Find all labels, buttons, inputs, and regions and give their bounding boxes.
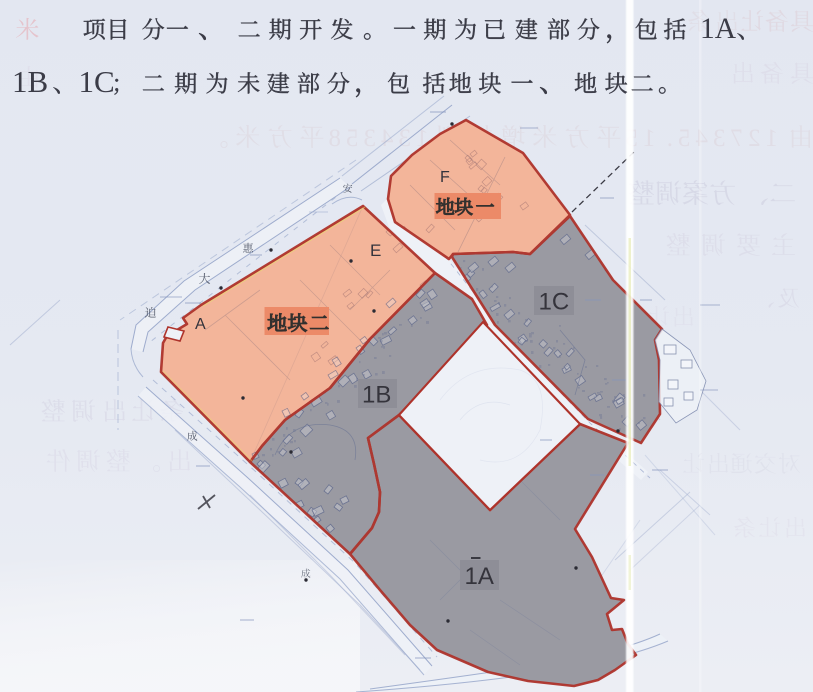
svg-text:1: 1 bbox=[643, 125, 656, 152]
svg-text:5: 5 bbox=[346, 125, 359, 152]
svg-text:1C: 1C bbox=[79, 64, 115, 99]
svg-text:3: 3 bbox=[364, 125, 377, 152]
svg-text:A: A bbox=[195, 316, 206, 333]
svg-text:1A: 1A bbox=[700, 13, 737, 45]
svg-text:1C: 1C bbox=[539, 289, 570, 316]
svg-text:F: F bbox=[440, 169, 450, 186]
svg-text:1A: 1A bbox=[465, 563, 494, 590]
svg-text:4: 4 bbox=[381, 125, 394, 152]
svg-text:8: 8 bbox=[329, 125, 342, 152]
svg-text:1B: 1B bbox=[362, 382, 391, 409]
svg-text:E: E bbox=[370, 241, 381, 260]
svg-text:2: 2 bbox=[748, 125, 761, 152]
svg-text:.: . bbox=[667, 125, 673, 152]
svg-text:5: 5 bbox=[678, 125, 691, 152]
svg-text:3: 3 bbox=[713, 125, 726, 152]
svg-text:1B: 1B bbox=[12, 64, 48, 99]
svg-text:1: 1 bbox=[766, 125, 779, 152]
svg-text:7: 7 bbox=[731, 125, 744, 152]
